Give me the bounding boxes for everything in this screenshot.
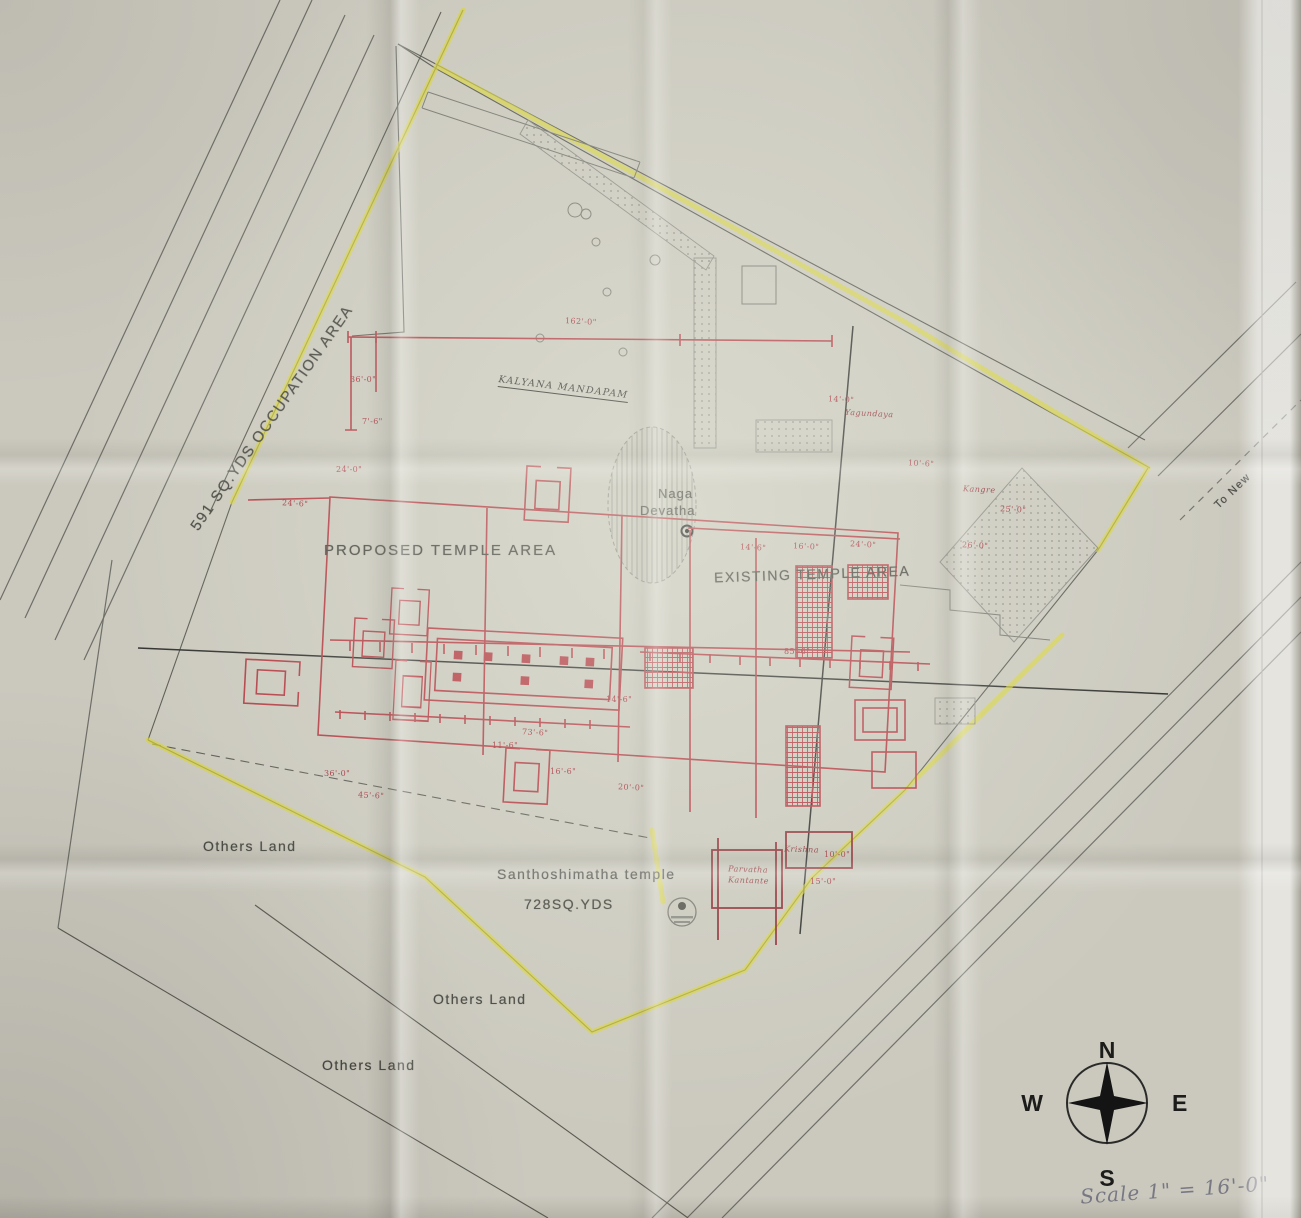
naga-label: Naga — [658, 486, 693, 501]
dimension-label: 36'-0" — [350, 376, 376, 384]
right-road-lines — [652, 282, 1301, 1218]
dimension-label: 16'-6" — [550, 768, 576, 776]
compass-east: E — [1172, 1090, 1187, 1116]
dimension-label: 36'-0" — [324, 770, 350, 778]
annotation: Kantante — [728, 876, 769, 885]
left-road-lines — [0, 0, 374, 928]
dimension-label: 26'-0" — [962, 541, 989, 550]
dimension-label: 11'-6" — [492, 742, 518, 750]
red-bottom-structures — [712, 832, 852, 945]
pond — [940, 468, 1098, 642]
site-plan-drawing: N S W E — [0, 0, 1301, 1218]
annotation: Krishna — [784, 845, 819, 854]
compass-rose: N S W E — [1021, 1037, 1187, 1191]
dimension-label: 14'-0" — [828, 395, 855, 404]
dimension-label: 85'-6" — [784, 648, 810, 656]
temple-area-value-label: 728SQ.YDS — [524, 896, 614, 912]
dimension-label: 73'-6" — [522, 728, 549, 737]
site-plan-photo: N S W E 591 SQ.YDS OCCUPATION AREA PROPO… — [0, 0, 1301, 1218]
annotation: Parvatha — [728, 865, 768, 874]
dimension-label: 14'-6" — [606, 696, 632, 704]
dimension-label: 7'-6" — [362, 418, 383, 426]
dimension-label: 10'-0" — [824, 851, 850, 859]
dimension-label: 20'-0" — [618, 783, 645, 792]
proposed-temple-area-label: PROPOSED TEMPLE AREA — [324, 542, 557, 559]
dimension-label: 162'-0" — [565, 317, 597, 327]
dimension-label: 24'-6" — [282, 499, 309, 508]
dimension-label: 24'-0" — [850, 540, 877, 549]
stamp-logo — [668, 898, 696, 926]
dimension-label: 14'-6" — [740, 543, 767, 552]
others-land-label-3: Others Land — [322, 1057, 416, 1073]
dimension-label: 16'-0" — [793, 542, 820, 551]
others-land-label-1: Others Land — [203, 838, 297, 854]
temple-name-label: Santhoshimatha temple — [497, 866, 676, 882]
compass-north: N — [1099, 1037, 1116, 1063]
dimension-label: 15'-0" — [810, 878, 836, 886]
others-land-label-2: Others Land — [433, 991, 527, 1007]
dimension-label: 45'-6" — [358, 791, 385, 800]
devatha-label: Devatha — [640, 503, 695, 518]
dimension-label: 24'-0" — [336, 466, 362, 474]
annotation: Kangre — [963, 485, 996, 495]
dimension-label: 25'-0" — [1000, 505, 1027, 514]
footpath-stipple — [520, 120, 975, 724]
dimension-label: 10'-6" — [908, 459, 935, 468]
compass-west: W — [1021, 1090, 1043, 1116]
